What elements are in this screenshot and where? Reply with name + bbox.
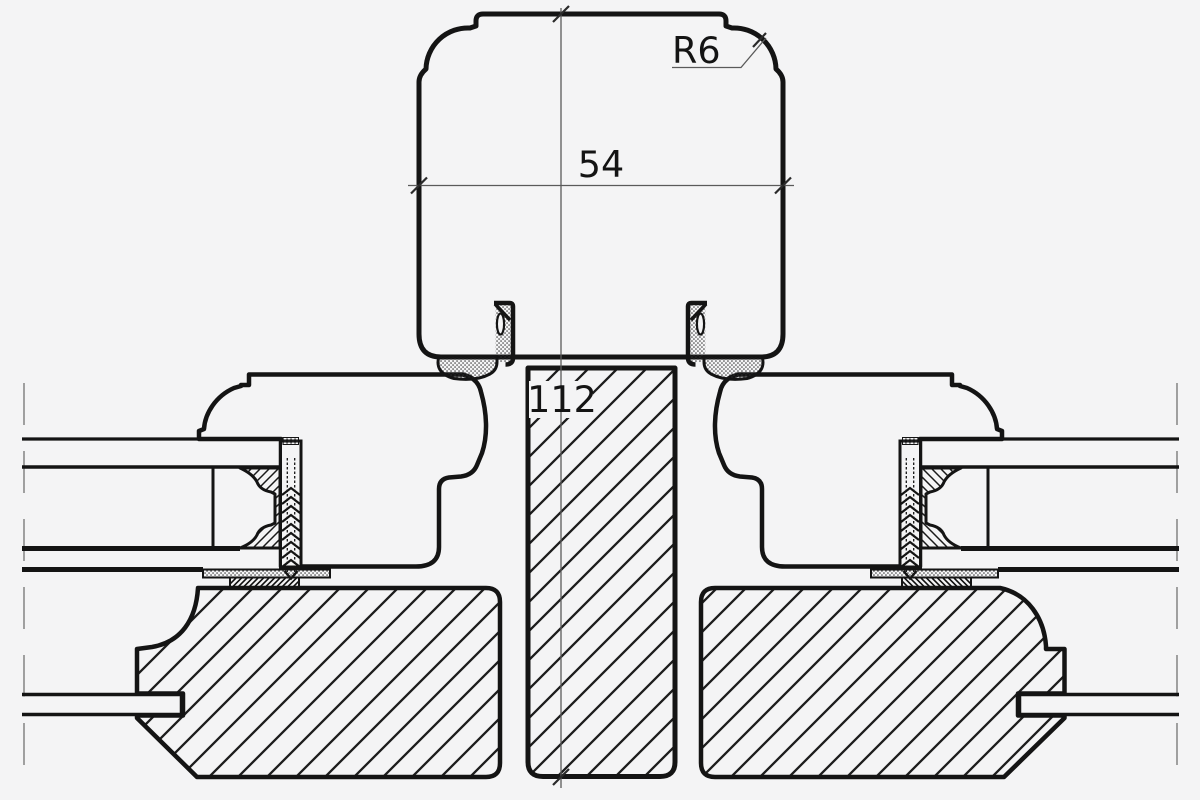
drawing-stage: 54 112 R6 (0, 0, 1200, 800)
center-post-hatch (528, 368, 675, 777)
left-edge-gasket (240, 468, 280, 548)
overall-height-label: 112 (527, 378, 597, 421)
left-sealing-strip (203, 570, 330, 578)
left-bottom-board (22, 693, 182, 717)
cap-width-label: 54 (578, 143, 624, 186)
left-glazing-unit (22, 439, 281, 570)
right-bottom-block-outline (701, 588, 1065, 777)
radius-label: R6 (672, 29, 721, 72)
left-setting-chock (230, 578, 299, 589)
technical-drawing-canvas: 54 112 R6 (0, 0, 1200, 800)
left-bottom-block-hatch (137, 588, 500, 777)
